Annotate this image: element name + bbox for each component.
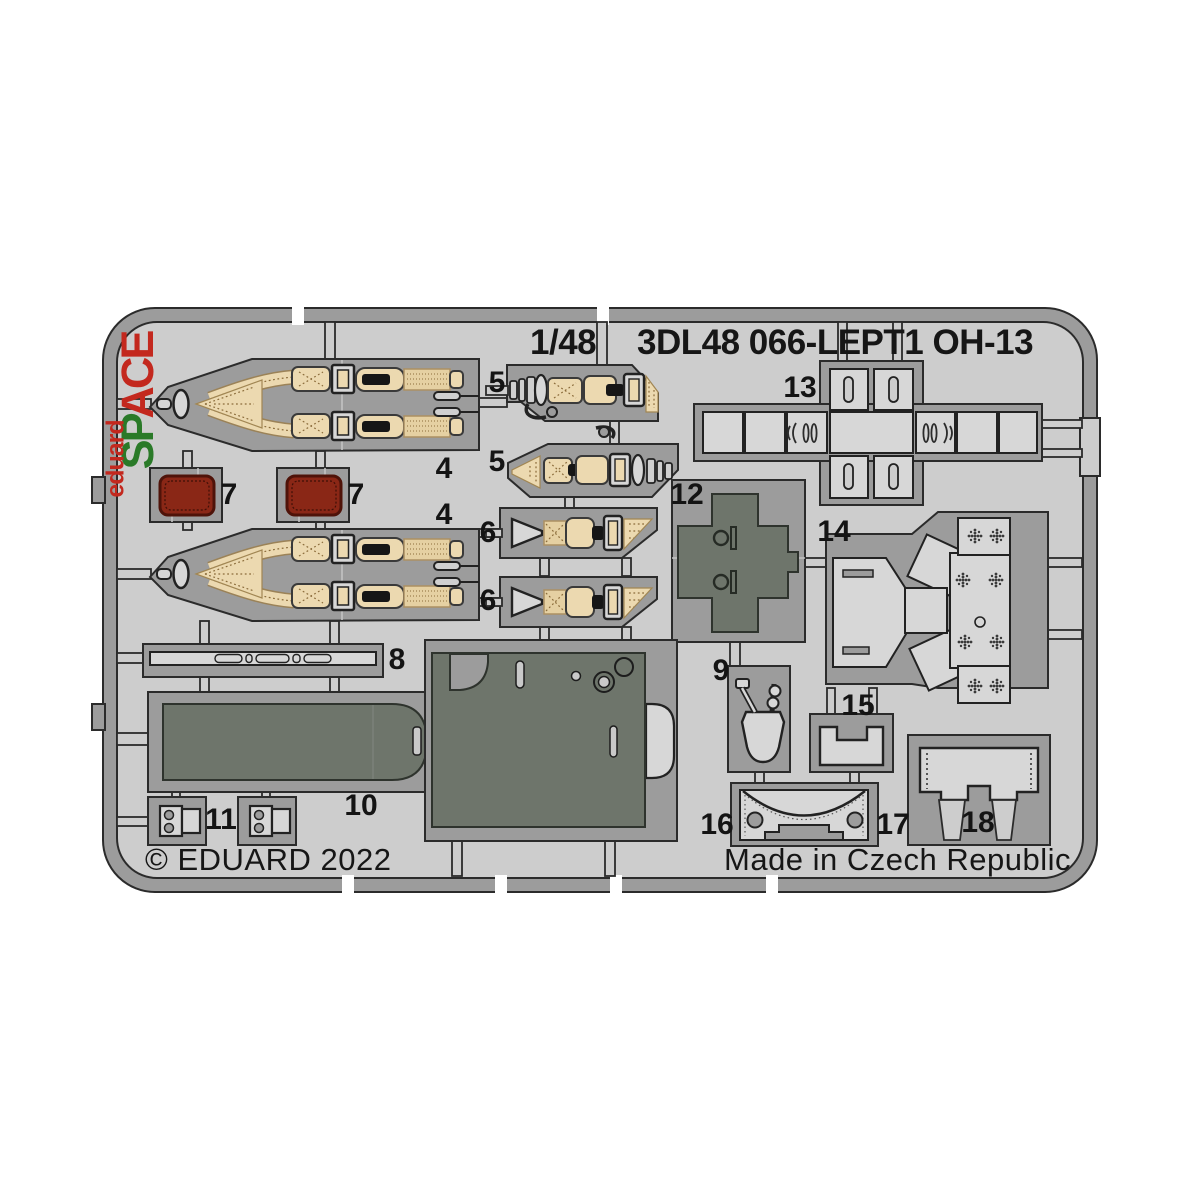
part-number-label: 13 [783, 371, 816, 405]
part-14-structure [826, 512, 1048, 703]
part-number-label: 18 [961, 806, 994, 840]
product-code: 3DL48 066-LEPT1 OH-13 [637, 323, 1033, 363]
part-number-label: 7 [348, 478, 365, 512]
eduard-logo: eduard [102, 420, 131, 497]
part-number-label: 4 [436, 452, 453, 486]
fret-artwork [0, 0, 1200, 1200]
part-9-levers [728, 666, 790, 772]
part-6-belt-upper [486, 508, 657, 558]
part-number-label: 8 [389, 643, 406, 677]
part-number-label: 4 [436, 498, 453, 532]
made-in-text: Made in Czech Republic [724, 842, 1071, 878]
part-number-label: 17 [876, 808, 909, 842]
part-number-label: 10 [344, 789, 377, 823]
part-number-label: 11 [205, 803, 237, 837]
part-11-buckle-left [148, 797, 206, 845]
part-7-cushion-left [150, 468, 222, 522]
part-number-label: 9 [713, 654, 730, 688]
scale-label: 1/48 [530, 323, 596, 363]
part-number-label: 5 [489, 366, 506, 400]
frame-gap [292, 305, 304, 325]
part-10-floor-left [148, 692, 430, 792]
part-10-floor-main [425, 640, 677, 841]
space-logo-suffix: ACE [112, 333, 163, 419]
photoetch-fret-product-image: 1/48 3DL48 066-LEPT1 OH-13 SPACE eduard … [0, 0, 1200, 1200]
part-number-label: 15 [841, 689, 874, 723]
part-6-belt-lower [486, 577, 657, 627]
part-number-label: 6 [480, 584, 497, 618]
part-number-label: 7 [221, 478, 238, 512]
part-number-label: 5 [489, 445, 506, 479]
part-number-label: 14 [817, 515, 850, 549]
part-11-buckle-right [238, 797, 296, 845]
part-16-17-frames [731, 783, 878, 846]
part-8-strip [143, 644, 383, 677]
part-number-label: 6 [480, 516, 497, 550]
part-number-label: 16 [700, 808, 733, 842]
part-7-cushion-right [277, 468, 349, 522]
copyright-text: © EDUARD 2022 [145, 842, 391, 878]
part-number-label: 12 [670, 478, 703, 512]
